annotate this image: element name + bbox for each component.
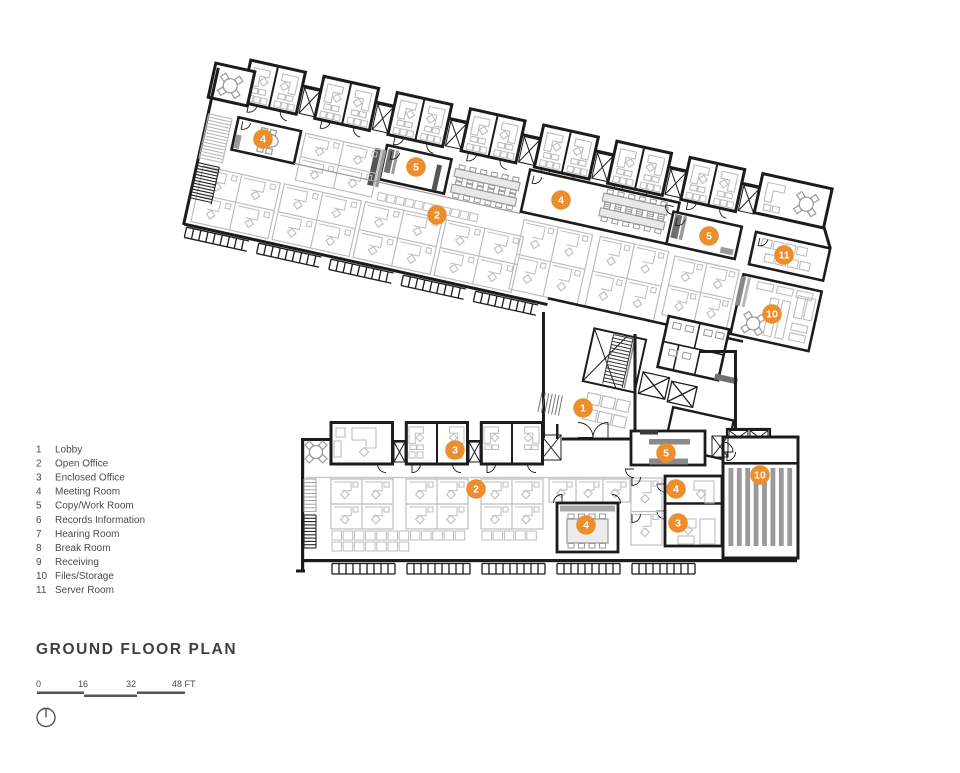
svg-text:10: 10 [36, 571, 48, 582]
svg-text:Enclosed Office: Enclosed Office [55, 473, 125, 484]
svg-text:Receiving: Receiving [55, 557, 99, 568]
svg-text:Break Room: Break Room [55, 543, 111, 554]
svg-text:1: 1 [580, 403, 586, 415]
svg-text:4: 4 [558, 195, 564, 207]
svg-text:5: 5 [36, 501, 42, 512]
svg-text:3: 3 [675, 518, 681, 530]
svg-text:2: 2 [434, 210, 440, 222]
svg-text:0: 0 [36, 679, 41, 689]
svg-text:Hearing Room: Hearing Room [55, 529, 119, 540]
svg-text:GROUND FLOOR PLAN: GROUND FLOOR PLAN [36, 641, 237, 658]
svg-text:4: 4 [583, 520, 589, 532]
svg-text:Open Office: Open Office [55, 459, 109, 470]
svg-text:2: 2 [36, 459, 42, 470]
svg-text:32: 32 [126, 679, 136, 689]
svg-text:10: 10 [754, 470, 766, 482]
svg-text:3: 3 [452, 445, 458, 457]
svg-text:Records Information: Records Information [55, 515, 145, 526]
svg-text:1: 1 [36, 445, 42, 456]
svg-text:4: 4 [260, 134, 266, 146]
svg-text:4: 4 [673, 484, 679, 496]
svg-text:9: 9 [36, 557, 42, 568]
svg-text:Lobby: Lobby [55, 445, 82, 456]
svg-text:16: 16 [78, 679, 88, 689]
svg-text:Server Room: Server Room [55, 585, 114, 596]
svg-text:Copy/Work Room: Copy/Work Room [55, 501, 134, 512]
svg-text:Meeting Room: Meeting Room [55, 487, 120, 498]
svg-text:3: 3 [36, 473, 42, 484]
svg-text:5: 5 [706, 231, 712, 243]
svg-text:48 FT: 48 FT [172, 679, 196, 689]
svg-text:2: 2 [473, 484, 479, 496]
svg-text:11: 11 [778, 250, 789, 262]
svg-text:5: 5 [663, 448, 669, 460]
svg-text:5: 5 [413, 162, 419, 174]
svg-text:11: 11 [36, 585, 47, 596]
svg-text:Files/Storage: Files/Storage [55, 571, 114, 582]
svg-text:4: 4 [36, 487, 42, 498]
svg-text:6: 6 [36, 515, 42, 526]
svg-text:7: 7 [36, 529, 42, 540]
svg-text:8: 8 [36, 543, 42, 554]
svg-text:10: 10 [766, 309, 778, 321]
